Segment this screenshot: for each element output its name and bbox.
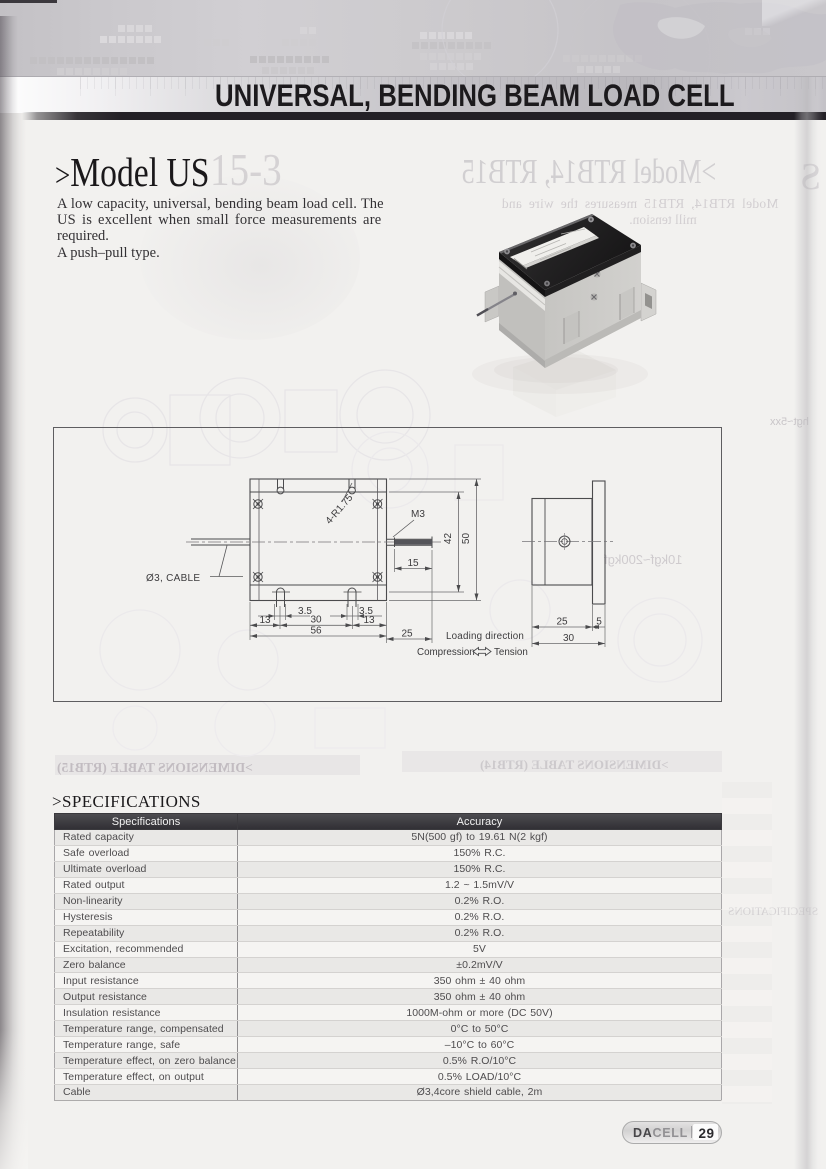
- svg-text:15: 15: [407, 558, 419, 569]
- svg-text:42: 42: [443, 533, 454, 545]
- svg-text:25: 25: [401, 629, 413, 640]
- svg-text:25: 25: [556, 617, 568, 628]
- svg-text:13: 13: [259, 615, 271, 626]
- svg-text:Tension: Tension: [494, 647, 528, 658]
- svg-text:30: 30: [310, 615, 322, 626]
- svg-text:Loading direction: Loading direction: [446, 631, 524, 642]
- svg-text:56: 56: [310, 626, 322, 637]
- svg-text:M3: M3: [411, 509, 425, 520]
- svg-text:13: 13: [363, 615, 375, 626]
- svg-text:5: 5: [596, 617, 602, 628]
- svg-text:30: 30: [563, 633, 575, 644]
- svg-text:4-R1.75: 4-R1.75: [324, 492, 356, 526]
- svg-text:Ø3, CABLE: Ø3, CABLE: [146, 573, 200, 584]
- svg-text:50: 50: [461, 533, 472, 545]
- svg-text:Compression: Compression: [417, 647, 475, 658]
